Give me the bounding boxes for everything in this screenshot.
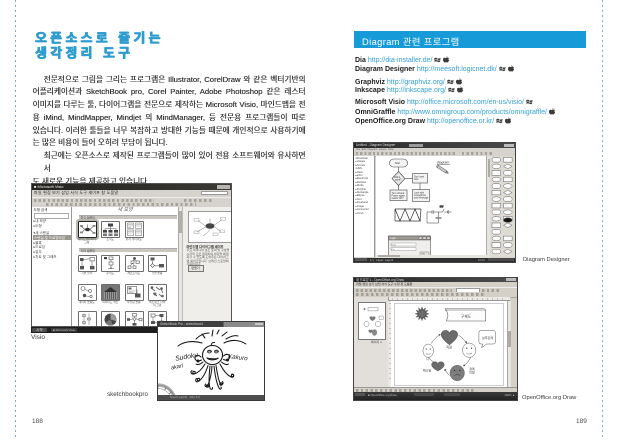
svg-text:how: how [414, 178, 419, 181]
svg-text:미팅: 미팅 [469, 369, 475, 374]
svg-text:switch OK?: switch OK? [391, 197, 404, 200]
svg-text:직장: 직장 [446, 344, 452, 349]
svg-text:실무관계: 실무관계 [482, 334, 493, 339]
svg-text:User: User [391, 243, 396, 246]
svg-text:and Message: and Message [414, 197, 429, 200]
svg-text:구체도: 구체도 [461, 313, 472, 318]
svg-text:Kakuro: Kakuro [228, 353, 249, 362]
svg-text:akari: akari [171, 363, 185, 372]
svg-text:Sudoku: Sudoku [175, 351, 199, 362]
svg-text:work?: work? [395, 179, 402, 182]
svg-text:Start: Start [395, 162, 400, 165]
svg-text:SW: SW [439, 206, 444, 209]
svg-text:팩스일: 팩스일 [422, 367, 431, 372]
svg-text:나: 나 [426, 355, 429, 360]
svg-text:Pw: Pw [391, 249, 394, 251]
svg-text:diagram: diagram [437, 161, 449, 165]
svg-text:Login: Login [390, 237, 397, 240]
